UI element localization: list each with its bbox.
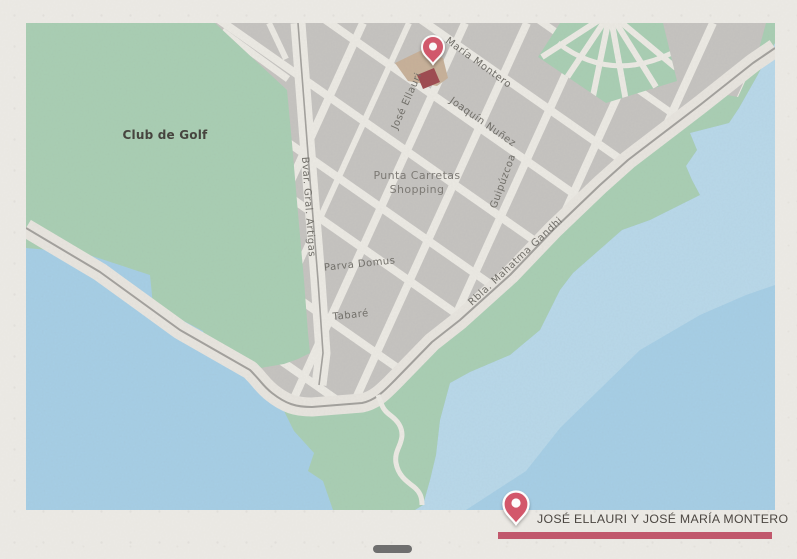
location-pin-icon: [496, 487, 536, 535]
home-indicator[interactable]: [373, 545, 412, 553]
map-svg: Club de Golf Bvar. Gral. Artigas María M…: [26, 23, 775, 510]
location-banner: JOSÉ ELLAURI Y JOSÉ MARÍA MONTERO: [490, 487, 780, 543]
banner-accent-bar: [498, 532, 772, 539]
map-canvas[interactable]: Club de Golf Bvar. Gral. Artigas María M…: [26, 23, 775, 510]
app-screen: Club de Golf Bvar. Gral. Artigas María M…: [0, 0, 797, 559]
map-texture-overlay: [26, 23, 775, 510]
banner-address-label: JOSÉ ELLAURI Y JOSÉ MARÍA MONTERO: [537, 512, 777, 526]
